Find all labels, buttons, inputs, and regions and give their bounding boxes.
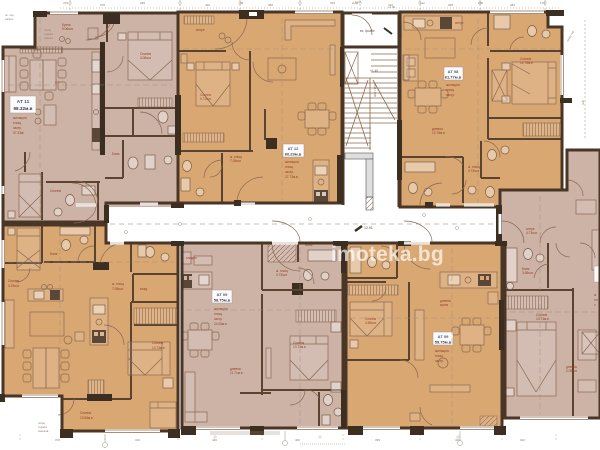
svg-text:420: 420 xyxy=(212,438,217,442)
svg-text:вход: вход xyxy=(352,1,358,5)
svg-text:376: 376 xyxy=(63,1,68,5)
svg-text:3.08м.в: 3.08м.в xyxy=(140,56,151,60)
svg-text:жилищна: жилищна xyxy=(435,349,449,353)
svg-text:АТ 12: АТ 12 xyxy=(288,146,299,151)
svg-text:12.78м.в: 12.78м.в xyxy=(520,61,533,65)
svg-text:3.58м.в: 3.58м.в xyxy=(522,271,533,275)
svg-text:98.32м.в: 98.32м.в xyxy=(14,106,33,111)
svg-text:застр.: застр. xyxy=(13,126,22,130)
svg-text:АТ 09: АТ 09 xyxy=(438,334,449,339)
svg-text:376: 376 xyxy=(55,438,60,442)
svg-text:АТ 09: АТ 09 xyxy=(217,292,228,297)
svg-text:13.56м.в: 13.56м.в xyxy=(80,416,93,420)
svg-text:площ: площ xyxy=(13,121,21,125)
svg-text:24.08м.в: 24.08м.в xyxy=(214,322,227,326)
svg-text:3.19м.в: 3.19м.в xyxy=(8,284,19,288)
svg-text:засенчв.: засенчв. xyxy=(38,429,49,433)
svg-text:395: 395 xyxy=(375,438,380,442)
svg-text:95: 95 xyxy=(240,1,244,5)
svg-text:засенч.: засенч. xyxy=(44,36,54,40)
svg-text:антре: антре xyxy=(196,28,205,32)
svg-text:12.78м.в: 12.78м.в xyxy=(432,131,445,135)
svg-text:площ: площ xyxy=(214,312,222,316)
svg-text:4.73м.в: 4.73м.в xyxy=(526,231,537,235)
svg-text:16x17.5/28: 16x17.5/28 xyxy=(373,84,377,97)
svg-text:вх. фоайе: вх. фоайе xyxy=(360,29,375,33)
svg-text:386: 386 xyxy=(268,3,273,7)
svg-text:Баня: Баня xyxy=(112,152,120,156)
svg-text:жилищна: жилищна xyxy=(285,160,299,164)
svg-text:площ: площ xyxy=(285,165,293,169)
svg-text:302: 302 xyxy=(520,438,525,442)
svg-text:4.73м.в: 4.73м.в xyxy=(468,169,479,173)
svg-text:268: 268 xyxy=(140,1,145,5)
svg-text:410: 410 xyxy=(455,438,460,442)
svg-text:13.73м.в: 13.73м.в xyxy=(152,346,165,350)
svg-text:Спалня: Спалня xyxy=(152,341,163,345)
svg-text:площ: площ xyxy=(446,88,454,92)
svg-text:АТ 08: АТ 08 xyxy=(448,69,459,74)
svg-text:хладил: хладил xyxy=(186,256,197,260)
svg-text:застр.: застр. xyxy=(285,170,294,174)
svg-text:дн.: дн. xyxy=(55,80,60,84)
svg-text:420: 420 xyxy=(205,3,210,7)
svg-text:27.73м.в: 27.73м.в xyxy=(285,175,298,179)
svg-text:395: 395 xyxy=(448,3,453,7)
svg-text:59.75м.в: 59.75м.в xyxy=(435,340,452,345)
svg-text:Спалня: Спалня xyxy=(8,279,19,283)
svg-text:+0.00: +0.00 xyxy=(388,5,396,9)
svg-text:засенч.: засенч. xyxy=(5,18,14,21)
svg-text:застр.: застр. xyxy=(446,93,455,97)
svg-text:площ: площ xyxy=(435,354,443,358)
svg-text:58.75м.в: 58.75м.в xyxy=(214,298,231,303)
svg-text:11.71м.в: 11.71м.в xyxy=(230,371,243,375)
svg-text:60.23м.в: 60.23м.в xyxy=(285,152,302,157)
svg-text:5.06м.в: 5.06м.в xyxy=(62,27,73,31)
svg-text:97.33м²: 97.33м² xyxy=(13,131,24,135)
svg-text:жилищна: жилищна xyxy=(214,307,228,311)
svg-text:4.73м.в: 4.73м.в xyxy=(276,273,287,277)
svg-text:7.05м.в: 7.05м.в xyxy=(230,159,241,163)
svg-text:imoteka.bg: imoteka.bg xyxy=(331,243,444,266)
svg-text:0.05м.в: 0.05м.в xyxy=(566,369,577,373)
svg-text:13.73м.в: 13.73м.в xyxy=(536,317,549,321)
svg-text:12.91: 12.91 xyxy=(364,226,373,230)
svg-text:антре: антре xyxy=(455,21,464,25)
svg-text:клад.: клад. xyxy=(140,287,148,291)
svg-text:310: 310 xyxy=(135,438,140,442)
svg-text:376: 376 xyxy=(100,3,105,7)
svg-text:пл. тер.: пл. тер. xyxy=(5,14,14,17)
svg-text:кухня: кухня xyxy=(440,303,448,307)
svg-text:Спалня: Спалня xyxy=(50,189,61,193)
svg-text:жилищна: жилищна xyxy=(446,83,460,87)
svg-text:5.72м.в: 5.72м.в xyxy=(200,97,211,101)
svg-text:402: 402 xyxy=(295,438,300,442)
svg-text:АТ 11: АТ 11 xyxy=(17,99,30,105)
svg-text:Спалня: Спалня xyxy=(80,411,91,415)
svg-text:13.73м.в: 13.73м.в xyxy=(293,345,306,349)
svg-text:пл: пл xyxy=(594,298,598,302)
svg-text:ж. площ: ж. площ xyxy=(112,282,124,286)
svg-text:170: 170 xyxy=(540,1,545,5)
svg-text:305: 305 xyxy=(581,100,585,105)
svg-text:застр.: застр. xyxy=(214,317,223,321)
svg-text:застр.: застр. xyxy=(435,359,444,363)
svg-text:325: 325 xyxy=(330,1,335,5)
svg-text:7.05м.в: 7.05м.в xyxy=(112,287,123,291)
svg-text:61.77м.в: 61.77м.в xyxy=(445,75,462,80)
svg-text:382: 382 xyxy=(510,3,515,7)
svg-text:112: 112 xyxy=(420,1,425,5)
svg-text:3.58м.в: 3.58м.в xyxy=(365,321,376,325)
svg-text:жилищна: жилищна xyxy=(13,116,27,120)
svg-text:+1.40: +1.40 xyxy=(370,69,378,73)
svg-text:Баня: Баня xyxy=(50,252,58,256)
